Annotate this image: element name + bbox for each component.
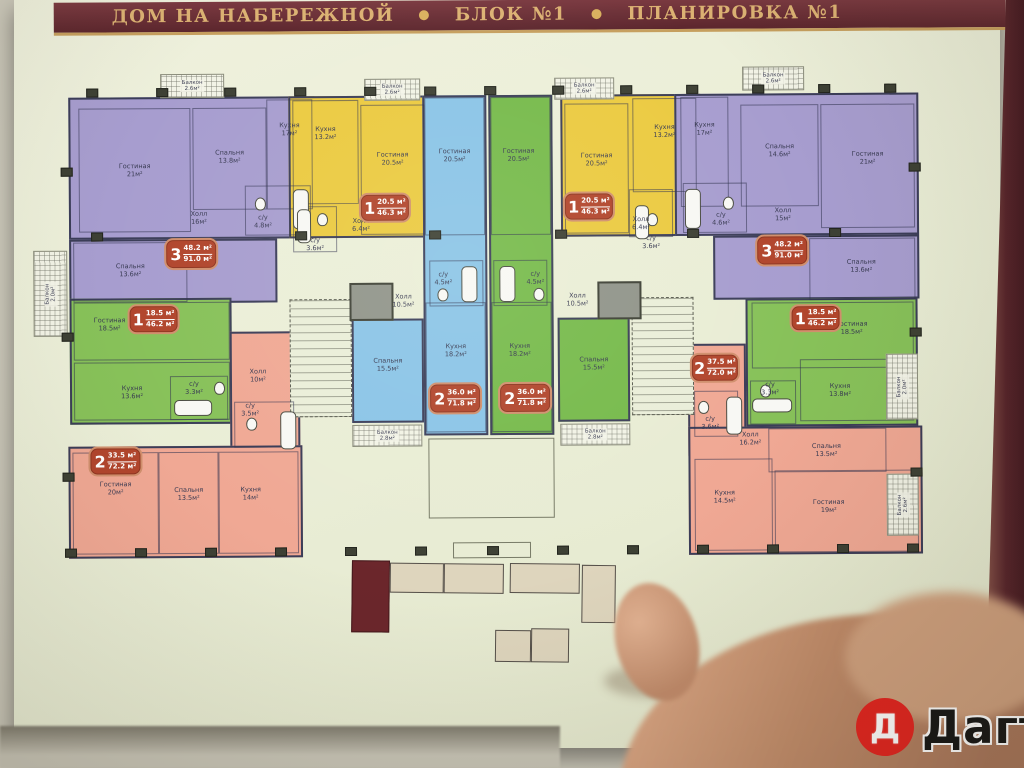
pillar xyxy=(829,228,841,237)
pillar xyxy=(552,86,564,95)
room-label: Кухня13.8м² xyxy=(829,382,851,398)
room-label: Спальня14.6м² xyxy=(765,142,794,158)
balcony-label: Балкон2.8м² xyxy=(375,429,400,442)
room-label: Спальня15.5м² xyxy=(373,357,402,373)
apartment-badge: 120.5 м²46.3 м² xyxy=(563,191,615,221)
apartment-badge: 237.5 м²72.0 м² xyxy=(690,353,740,383)
balcony-label: Балкон2.6м² xyxy=(380,83,405,96)
room-label: Спальня15.5м² xyxy=(579,355,608,371)
balcony: Балкон2.0м² xyxy=(33,251,68,337)
dagti-logo: Д Дагти xyxy=(856,698,1024,756)
bathtub-icon xyxy=(726,397,742,435)
pillar xyxy=(909,162,921,171)
pillar xyxy=(205,548,217,557)
room-label: Гостиная20.5м² xyxy=(439,147,471,163)
balcony-label: Балкон2.0м² xyxy=(44,281,57,306)
pillar xyxy=(557,546,569,555)
apartment-badge: 120.5 м²46.3 м² xyxy=(359,193,411,223)
room-label: с/у4.8м² xyxy=(254,213,272,229)
pillar xyxy=(156,88,168,97)
bathtub-icon xyxy=(174,400,212,416)
room-label: Гостиная21м² xyxy=(119,162,151,178)
room-label: Гостиная20м² xyxy=(100,480,132,496)
balcony: Балкон2.8м² xyxy=(352,425,422,447)
pillar xyxy=(65,549,77,558)
toilet-icon xyxy=(437,288,448,301)
sitemap-block xyxy=(510,563,580,594)
pillar xyxy=(818,84,830,93)
room-label: Холл10.5м² xyxy=(566,291,588,307)
pillar xyxy=(135,548,147,557)
room-label: с/у3.6м² xyxy=(701,415,719,431)
room-label: Холл10м² xyxy=(250,367,267,383)
room-label: Кухня18.2м² xyxy=(445,342,467,358)
sitemap-block xyxy=(495,630,531,662)
room xyxy=(490,97,551,235)
room-label: Спальня13.5м² xyxy=(174,486,203,502)
room-label: Спальня13.5м² xyxy=(812,442,841,458)
balcony-label: Балкон2.8м² xyxy=(583,428,608,441)
sitemap-block xyxy=(581,565,616,623)
sitemap-block-current xyxy=(351,560,390,632)
room-label: с/у4.5м² xyxy=(526,270,544,286)
toilet-icon xyxy=(317,213,328,226)
room xyxy=(424,97,485,235)
apartment-badge: 233.5 м²72.2 м² xyxy=(88,446,142,476)
bathtub-icon xyxy=(685,189,701,229)
bathtub-icon xyxy=(752,398,792,412)
pillar xyxy=(61,168,73,177)
pillar xyxy=(884,84,896,93)
room-label: Холл15м² xyxy=(775,206,792,222)
room-label: Холл6.4м² xyxy=(632,215,650,231)
dagti-logo-text: Дагти xyxy=(922,701,1024,754)
pillar xyxy=(687,229,699,238)
apartment-badge: 118.5 м²46.2 м² xyxy=(128,304,180,334)
balcony-label: Балкон2.0м² xyxy=(896,374,909,399)
pillar xyxy=(627,545,639,554)
balcony-label: Балкон2.6м² xyxy=(572,82,597,95)
toilet-icon xyxy=(255,198,266,211)
sitemap-block xyxy=(390,563,444,594)
pillar xyxy=(345,547,357,556)
pillar xyxy=(487,546,499,555)
pillar xyxy=(91,232,103,241)
balcony-label: Балкон2.6м² xyxy=(180,80,205,93)
room-label: с/у3.6м² xyxy=(306,236,324,252)
pillar xyxy=(484,86,496,95)
room-label: с/у4.5м² xyxy=(434,270,452,286)
pillar xyxy=(907,544,919,553)
bathtub-icon xyxy=(499,266,515,302)
apartment-badge: 118.5 м²46.2 м² xyxy=(790,304,842,332)
room-label: Кухня17м² xyxy=(279,121,300,137)
pillar xyxy=(224,88,236,97)
pillar xyxy=(294,87,306,96)
room-label: Холл10.5м² xyxy=(392,292,414,308)
bathtub-icon xyxy=(461,266,477,302)
balcony: Балкон2.6м² xyxy=(887,474,919,536)
room-label: с/у3.6м² xyxy=(642,234,660,250)
room-label: с/у4.6м² xyxy=(712,211,730,227)
pillar xyxy=(555,230,567,239)
balcony: Балкон2.6м² xyxy=(160,74,224,98)
apartment-badge: 348.2 м²91.0 м² xyxy=(755,234,809,266)
pillar xyxy=(837,544,849,553)
brochure-photo: ДОМ НА НАБЕРЕЖНОЙ ● БЛОК №1 ● ПЛАНИРОВКА… xyxy=(0,0,1024,768)
toilet-icon xyxy=(698,401,709,414)
pillar xyxy=(86,89,98,98)
pillar xyxy=(686,85,698,94)
room-label: Кухня14м² xyxy=(240,485,261,501)
pillar xyxy=(62,333,74,342)
pillar xyxy=(911,467,923,476)
room-label: Холл16.2м² xyxy=(739,430,761,446)
room-label: Гостиная20.5м² xyxy=(503,147,535,163)
room-label: Спальня13.8м² xyxy=(215,149,244,165)
toilet-icon xyxy=(214,382,225,395)
room-label: Гостиная20.5м² xyxy=(581,151,613,167)
room-label: Кухня13.2м² xyxy=(314,125,336,141)
dagti-logo-icon: Д xyxy=(856,698,914,756)
pillar xyxy=(275,547,287,556)
pillar xyxy=(697,545,709,554)
pillar xyxy=(415,547,427,556)
apartment-badge: 236.0 м²71.8 м² xyxy=(498,382,552,414)
room-label: с/у3.5м² xyxy=(241,401,259,417)
room-label: Гостиная19м² xyxy=(813,498,845,514)
room-label: Кухня14.5м² xyxy=(714,489,736,505)
apartment-badge: 236.0 м²71.8 м² xyxy=(428,382,482,414)
room-label: Спальня13.6м² xyxy=(847,258,876,274)
pillar xyxy=(364,87,376,96)
room-label: Кухня13.2м² xyxy=(653,123,675,139)
room-label: Гостиная18.5м² xyxy=(94,316,126,332)
room-label: Гостиная20.5м² xyxy=(377,151,409,167)
balcony: Балкон2.8м² xyxy=(560,423,630,445)
pillar xyxy=(910,327,922,336)
pillar xyxy=(424,86,436,95)
pillar xyxy=(63,473,75,482)
room-label: Гостиная21м² xyxy=(852,150,884,166)
balcony-label: Балкон2.6м² xyxy=(761,72,786,85)
toilet-icon xyxy=(533,288,544,301)
pillar xyxy=(429,230,441,239)
sitemap-block xyxy=(531,628,569,662)
room-label: Спальня13.6м² xyxy=(116,262,145,278)
room-label: Кухня13.6м² xyxy=(121,384,143,400)
room-label: с/у3.3м² xyxy=(761,380,779,396)
room-label: Кухня18.2м² xyxy=(509,342,531,358)
toilet-icon xyxy=(246,418,257,431)
pillar xyxy=(295,231,307,240)
room-label: Холл16м² xyxy=(191,210,208,226)
room-label: с/у3.3м² xyxy=(185,380,203,396)
sitemap-block xyxy=(444,563,504,594)
pillar xyxy=(752,84,764,93)
table-surface xyxy=(0,726,560,768)
balcony-label: Балкон2.6м² xyxy=(896,492,909,517)
pillar xyxy=(620,85,632,94)
room-label: Кухня17м² xyxy=(694,121,715,137)
apartment-badge: 348.2 м²91.0 м² xyxy=(164,238,218,270)
bathtub-icon xyxy=(280,411,296,449)
toilet-icon xyxy=(723,197,734,210)
pillar xyxy=(767,544,779,553)
room xyxy=(218,451,299,553)
balcony: Балкон2.0м² xyxy=(886,354,918,420)
room xyxy=(158,452,219,554)
